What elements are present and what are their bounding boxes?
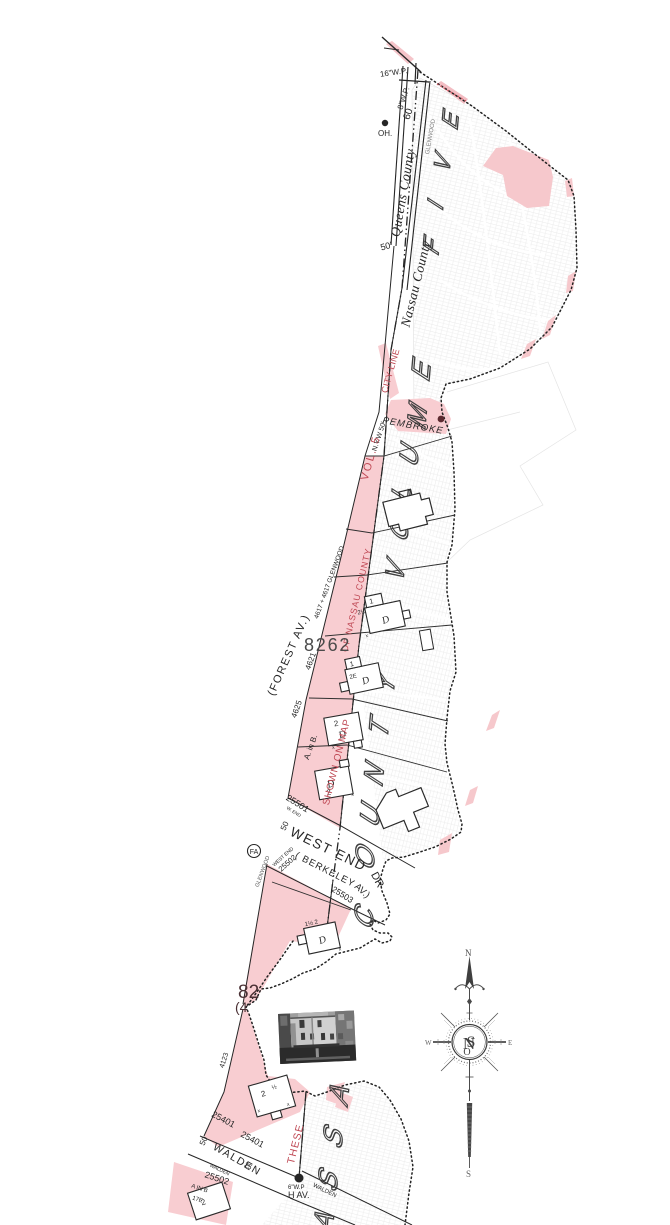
svg-text:W: W (425, 1039, 432, 1047)
svg-text:N: N (465, 948, 472, 958)
svg-text:H AV.: H AV. (288, 1190, 310, 1200)
svg-text:OH.: OH. (378, 129, 392, 138)
svg-text:O: O (463, 1047, 470, 1058)
svg-text:(4: (4 (235, 999, 248, 1015)
svg-text:FA: FA (250, 849, 259, 856)
svg-text:E: E (508, 1039, 512, 1047)
svg-text:S: S (466, 1169, 471, 1179)
